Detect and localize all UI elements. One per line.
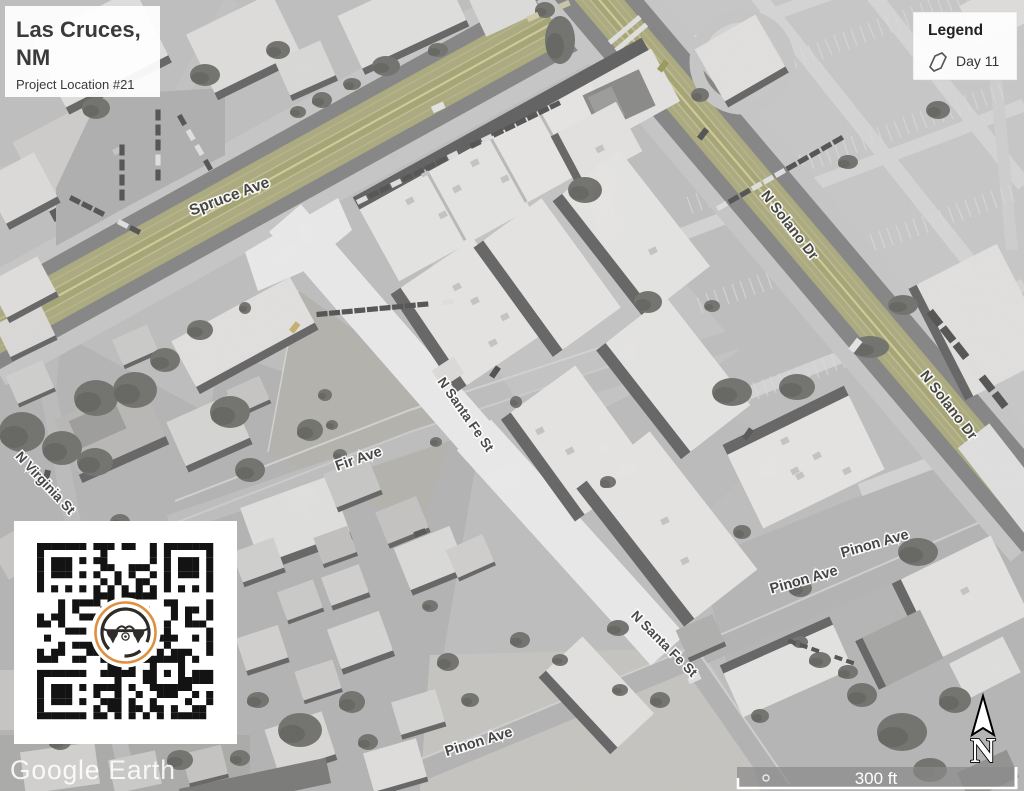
svg-text:Legend: Legend — [928, 22, 983, 39]
svg-text:NM: NM — [16, 45, 50, 70]
svg-text:Day 11: Day 11 — [956, 53, 1000, 69]
svg-text:N: N — [970, 731, 995, 770]
svg-text:Las Cruces,: Las Cruces, — [16, 17, 141, 42]
svg-text:Google Earth: Google Earth — [10, 755, 176, 785]
svg-text:300 ft: 300 ft — [855, 769, 898, 788]
svg-text:Project Location #21: Project Location #21 — [16, 77, 135, 92]
